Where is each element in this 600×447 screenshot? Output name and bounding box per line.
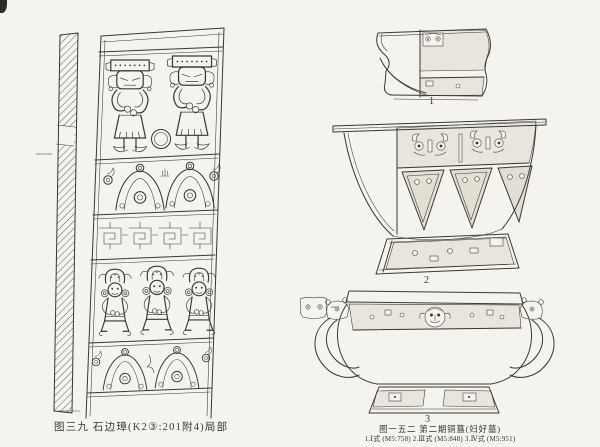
scan-corner-blemish [0, 0, 7, 13]
zhang-blade-drawing [18, 8, 253, 420]
gui-vessel-3-drawing [297, 287, 595, 415]
vessel-1-number: 1 [429, 96, 434, 107]
gui-vessel-2-drawing [330, 110, 550, 282]
zhang-side-strip [36, 33, 80, 413]
vessel-2-number: 2 [424, 275, 429, 286]
scanned-book-page: 图三九 石边璋(K2③:201附4)局部 1 [0, 0, 600, 447]
gui-vessel-1-drawing [368, 26, 498, 106]
figure-39-caption: 图三九 石边璋(K2③:201附4)局部 [54, 419, 228, 434]
handle-ornament-detail [300, 297, 339, 318]
figure-152-subcaption: 1.Ⅰ式 (M5:758) 2.Ⅲ式 (M5:848) 3.Ⅳ式 (M5:951… [295, 434, 585, 444]
pedestal-foot [369, 387, 499, 413]
zhang-blade-face [86, 28, 224, 418]
